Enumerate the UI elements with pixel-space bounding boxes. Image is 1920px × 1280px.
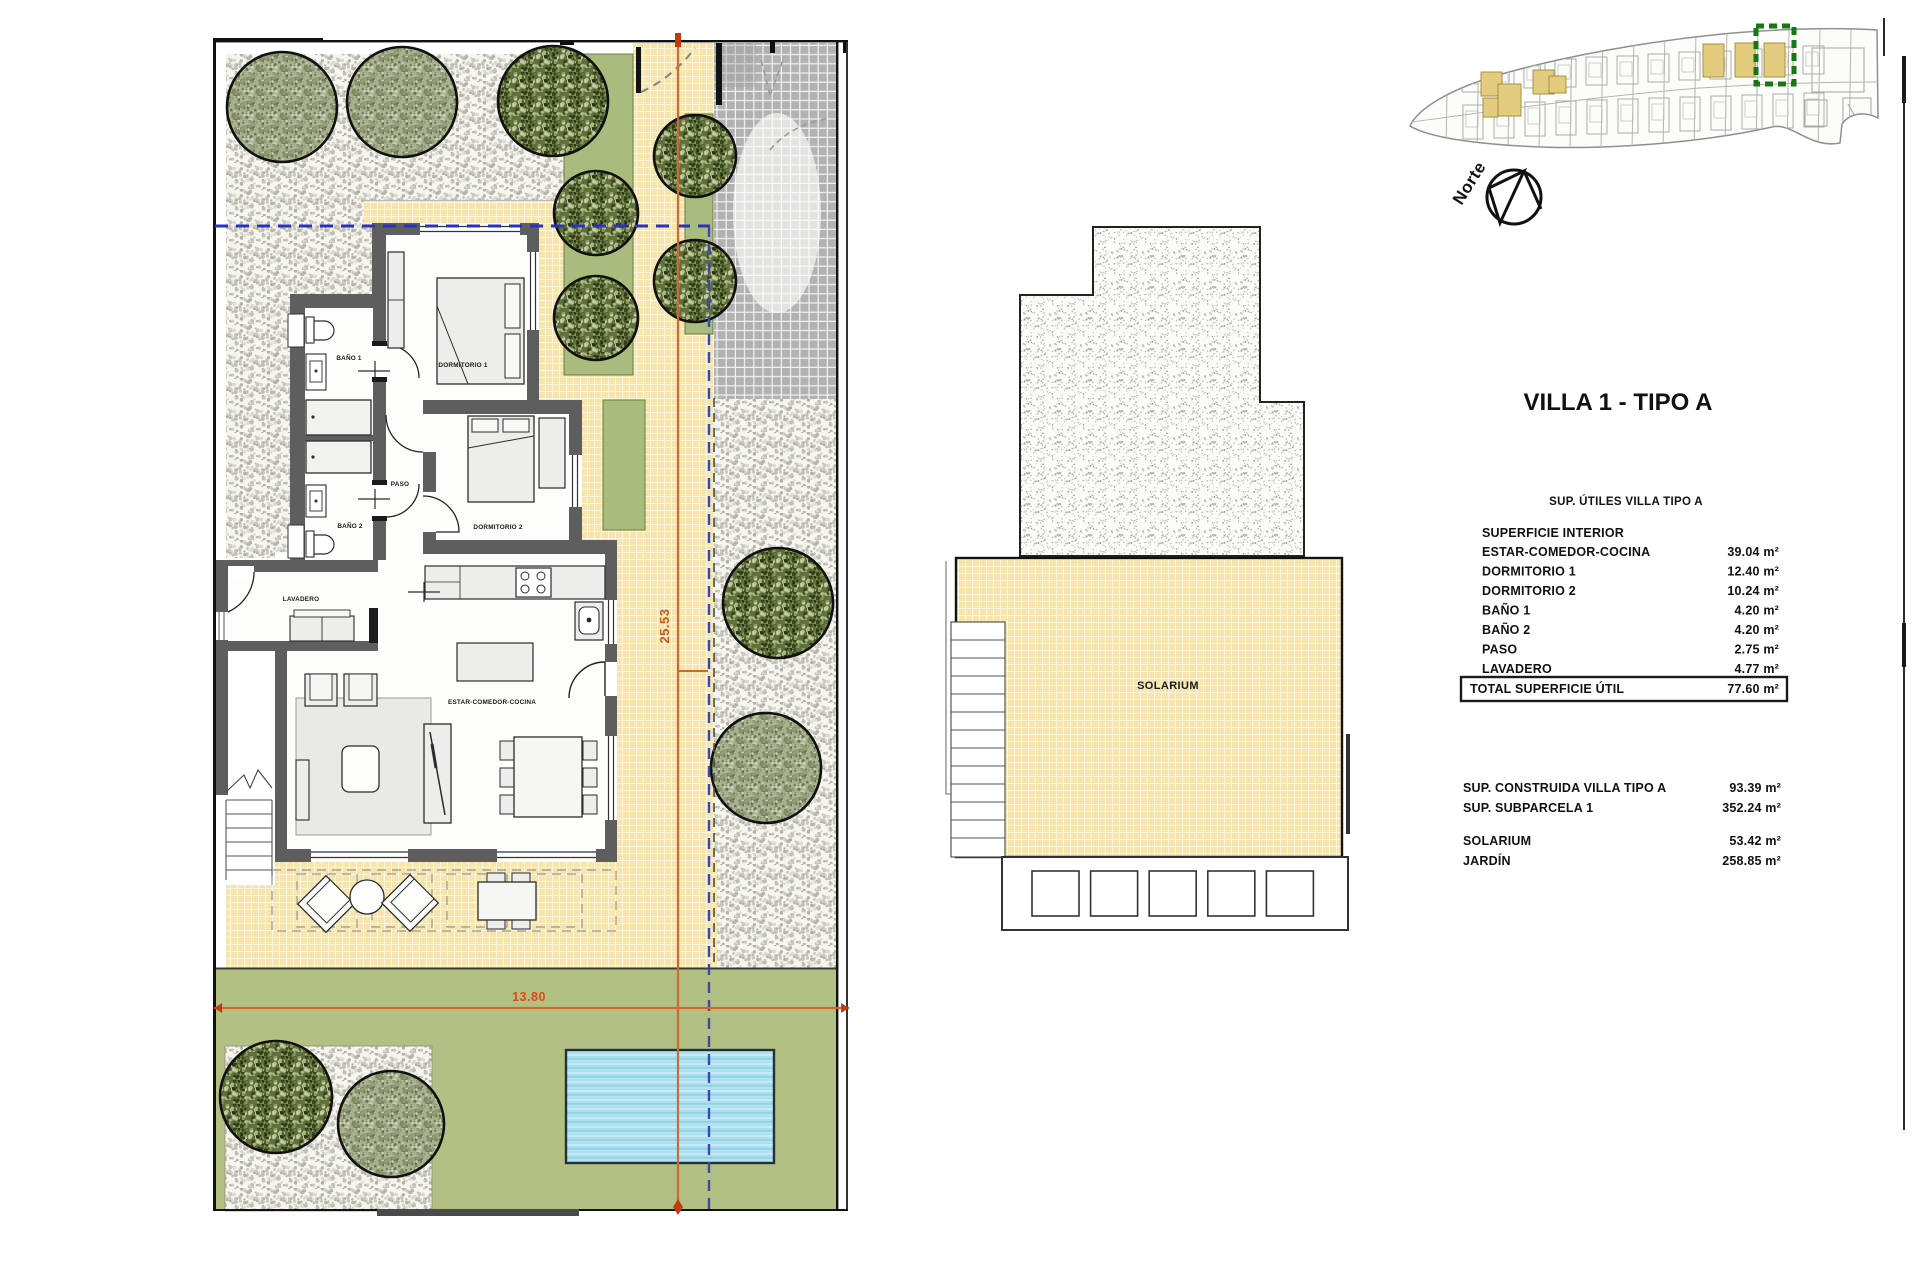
svg-text:PASO: PASO (391, 481, 409, 488)
svg-text:53.42 m²: 53.42 m² (1729, 834, 1781, 848)
svg-text:13.80: 13.80 (512, 990, 546, 1004)
svg-text:DORMITORIO 2: DORMITORIO 2 (1482, 584, 1576, 598)
svg-text:4.77 m²: 4.77 m² (1735, 662, 1779, 676)
svg-text:ESTAR-COMEDOR-COCINA: ESTAR-COMEDOR-COCINA (1482, 545, 1650, 559)
svg-text:25.53: 25.53 (657, 608, 672, 643)
svg-text:4.20 m²: 4.20 m² (1735, 604, 1779, 618)
svg-text:10.24 m²: 10.24 m² (1727, 584, 1779, 598)
svg-text:12.40 m²: 12.40 m² (1727, 565, 1779, 579)
svg-text:39.04 m²: 39.04 m² (1727, 545, 1779, 559)
svg-text:SUP. CONSTRUIDA VILLA TIPO A: SUP. CONSTRUIDA VILLA TIPO A (1463, 781, 1666, 795)
svg-text:JARDÍN: JARDÍN (1463, 853, 1511, 868)
svg-text:SUP. SUBPARCELA 1: SUP. SUBPARCELA 1 (1463, 801, 1593, 815)
svg-text:SOLARIUM: SOLARIUM (1463, 834, 1531, 848)
svg-text:4.20 m²: 4.20 m² (1735, 623, 1779, 637)
svg-text:258.85 m²: 258.85 m² (1722, 854, 1781, 868)
svg-text:SUPERFICIE INTERIOR: SUPERFICIE INTERIOR (1482, 526, 1624, 540)
svg-text:BAÑO 1: BAÑO 1 (1482, 603, 1530, 618)
svg-text:SOLARIUM: SOLARIUM (1137, 680, 1199, 692)
svg-text:77.60 m²: 77.60 m² (1727, 682, 1779, 696)
svg-text:BAÑO 1: BAÑO 1 (336, 353, 362, 362)
svg-text:BAÑO 2: BAÑO 2 (337, 521, 363, 530)
svg-text:2.75 m²: 2.75 m² (1735, 643, 1779, 657)
svg-text:TOTAL SUPERFICIE ÚTIL: TOTAL SUPERFICIE ÚTIL (1470, 681, 1624, 696)
svg-text:VILLA 1 - TIPO A: VILLA 1 - TIPO A (1524, 389, 1713, 416)
svg-text:DORMITORIO 1: DORMITORIO 1 (438, 362, 487, 369)
svg-text:93.39 m²: 93.39 m² (1729, 781, 1781, 795)
svg-text:LAVADERO: LAVADERO (1482, 662, 1552, 676)
svg-text:BAÑO 2: BAÑO 2 (1482, 622, 1530, 637)
svg-text:DORMITORIO 2: DORMITORIO 2 (473, 524, 522, 531)
svg-text:SUP. ÚTILES VILLA TIPO A: SUP. ÚTILES VILLA TIPO A (1549, 495, 1703, 508)
svg-text:352.24 m²: 352.24 m² (1722, 801, 1781, 815)
svg-text:DORMITORIO 1: DORMITORIO 1 (1482, 565, 1576, 579)
svg-text:PASO: PASO (1482, 643, 1517, 657)
svg-text:LAVADERO: LAVADERO (283, 596, 320, 603)
svg-text:ESTAR-COMEDOR-COCINA: ESTAR-COMEDOR-COCINA (448, 699, 536, 706)
